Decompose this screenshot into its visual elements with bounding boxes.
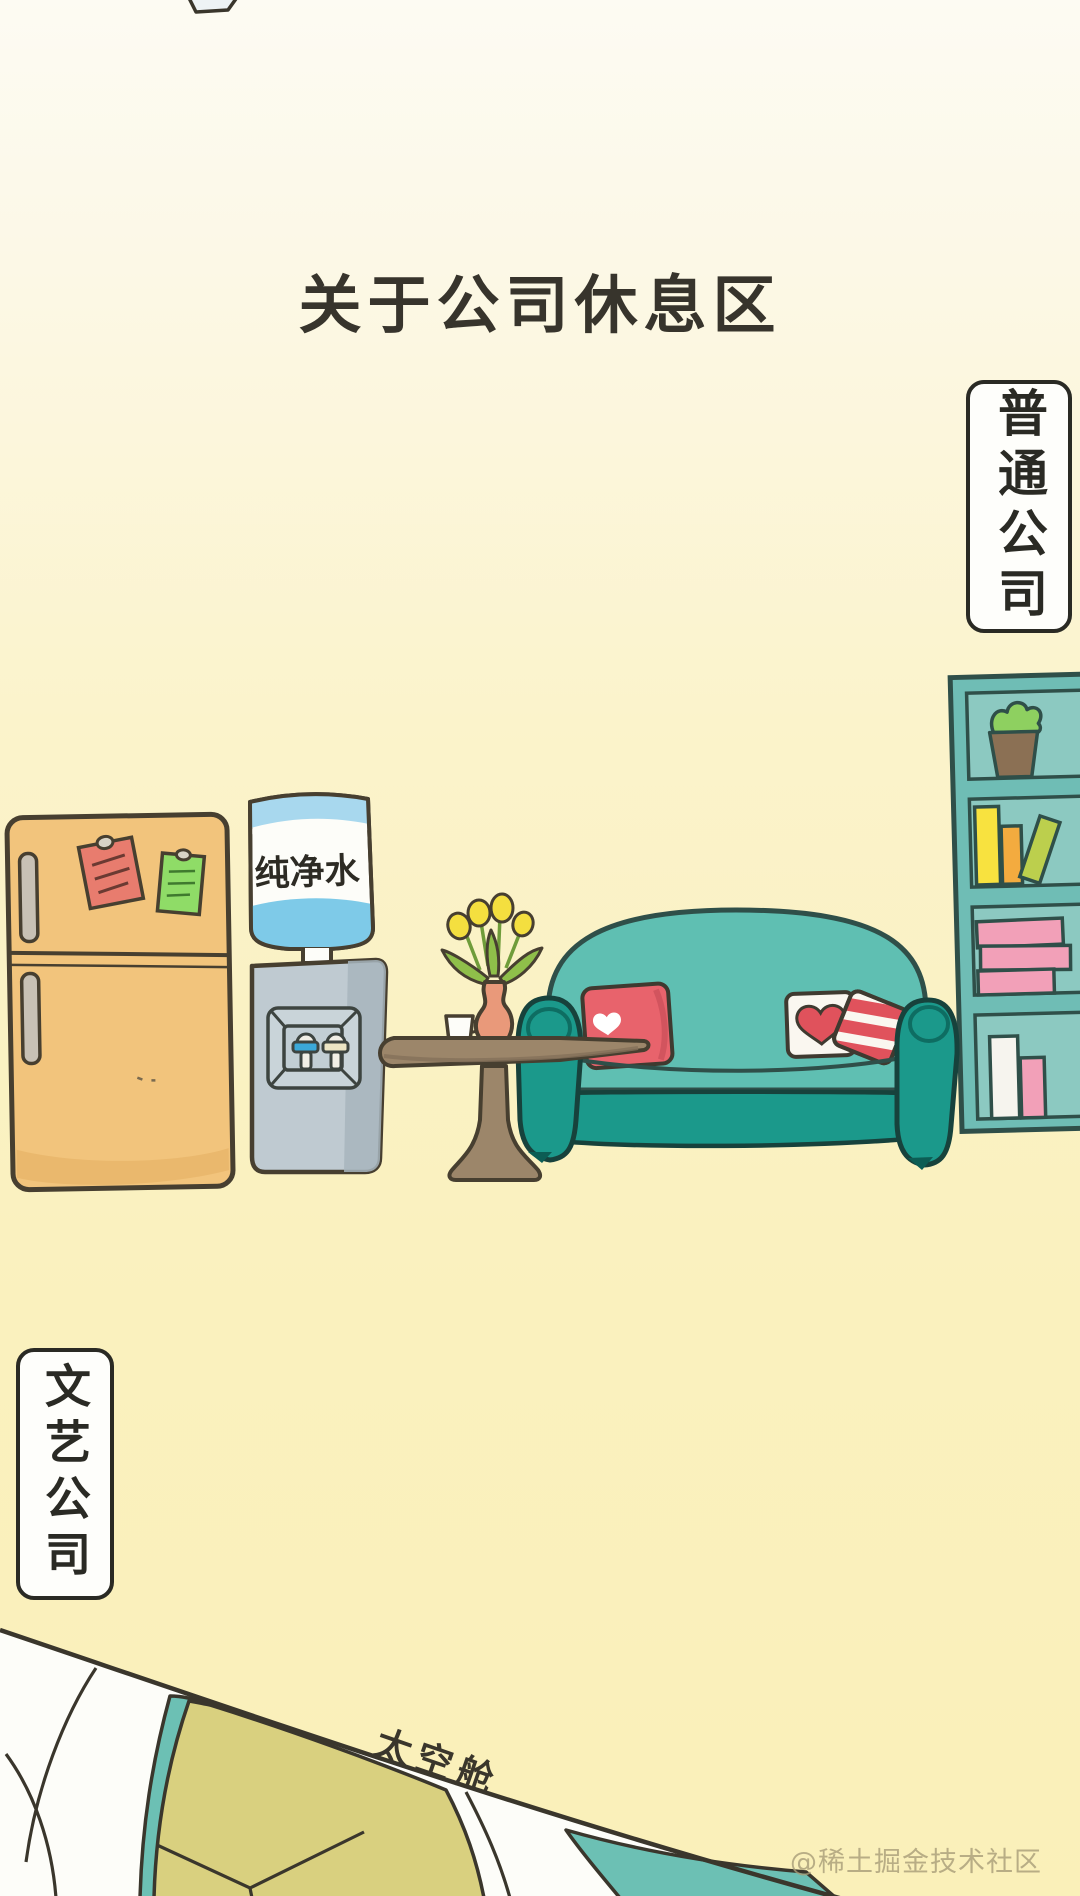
- community-watermark: @稀土掘金技术社区: [790, 1840, 1042, 1879]
- dispenser-tap-panel: [268, 1008, 360, 1088]
- bookshelf-illustration: [950, 673, 1080, 1131]
- sofa-arm-right: [897, 1000, 957, 1170]
- sofa-arm-left: [518, 998, 581, 1163]
- refrigerator-illustration: [7, 814, 233, 1190]
- label-artsy-company-text: 文艺公司: [32, 1362, 98, 1586]
- label-ordinary-company-text: 普通公司: [983, 387, 1055, 627]
- fridge-handle: [22, 973, 41, 1063]
- fridge-handle: [19, 853, 38, 941]
- potted-plant-icon: [989, 702, 1043, 778]
- label-artsy-company: 文艺公司: [16, 1348, 114, 1600]
- comic-panel-company-rest-area: 关于公司休息区 普通公司 文艺公司 纯净水 太空舱 @稀土掘金技术社区: [0, 0, 1080, 1896]
- top-cutoff-object-icon: [188, 0, 238, 12]
- water-bottle-label: 纯净水: [243, 842, 371, 897]
- sticky-note-green-icon: [157, 848, 204, 914]
- label-ordinary-company: 普通公司: [966, 380, 1072, 633]
- page-title: 关于公司休息区: [0, 255, 1080, 346]
